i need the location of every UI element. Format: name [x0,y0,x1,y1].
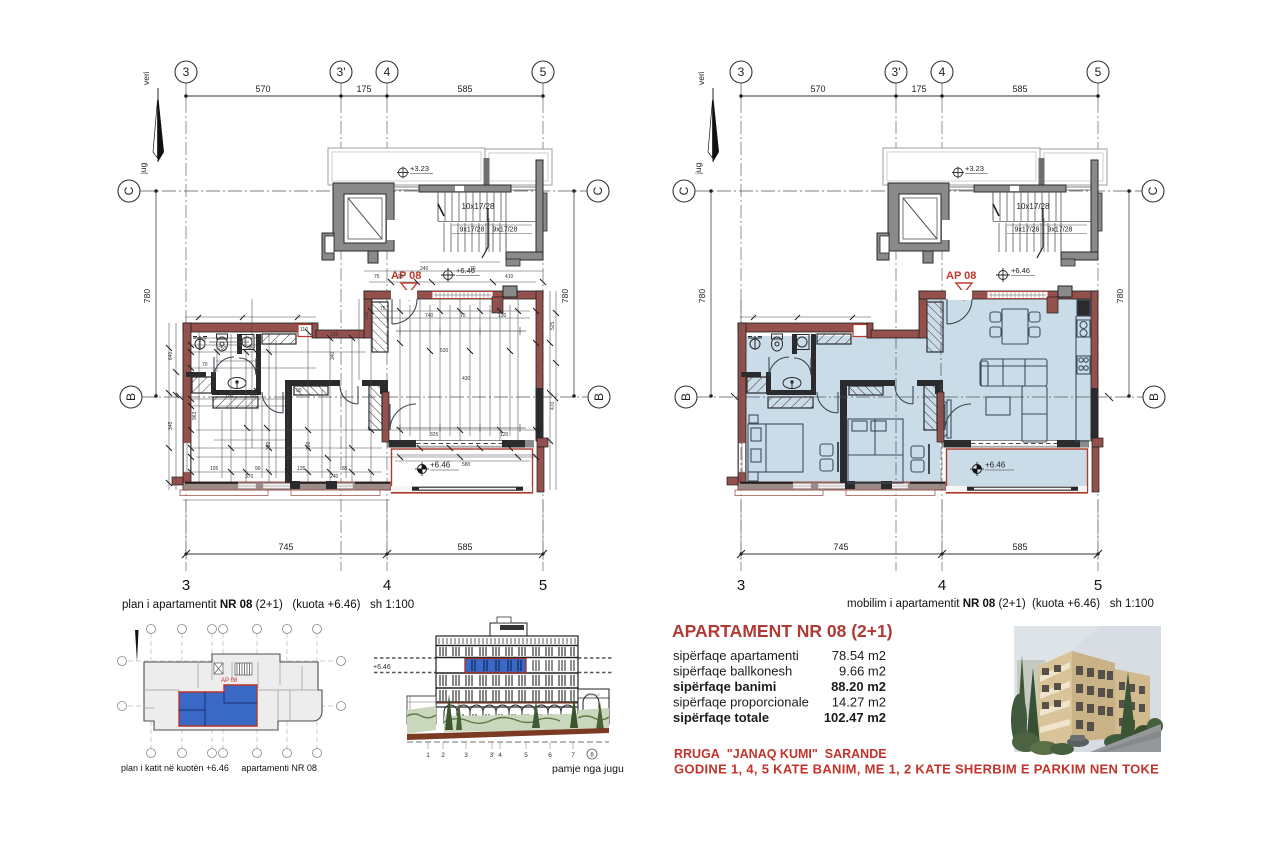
svg-text:78.54 m2: 78.54 m2 [832,648,886,663]
svg-text:70: 70 [202,362,208,368]
svg-text:105: 105 [210,466,219,472]
svg-text:85: 85 [342,466,348,472]
svg-text:GODINA: GODINA [586,693,600,697]
svg-text:345: 345 [168,421,174,430]
svg-text:mobilim i apartamentit NR 08 (: mobilim i apartamentit NR 08 (2+1) (kuot… [847,598,1154,610]
svg-text:2: 2 [441,752,445,759]
svg-text:340: 340 [330,351,336,360]
svg-text:RRUGA "JANAQ KUMI" SARANDE: RRUGA "JANAQ KUMI" SARANDE [674,747,887,761]
svg-text:750: 750 [364,311,370,320]
svg-text:plan i katit në kuotën +6.46: plan i katit në kuotën +6.46 apartamenti… [121,763,317,773]
svg-text:sipërfaqe proporcionale: sipërfaqe proporcionale [673,695,809,710]
svg-text:75: 75 [374,274,380,280]
svg-text:sipërfaqe ballkonesh: sipërfaqe ballkonesh [673,664,792,679]
svg-text:6: 6 [548,752,552,759]
svg-text:9.66 m2: 9.66 m2 [839,664,886,679]
svg-text:AP 08: AP 08 [221,678,238,684]
svg-text:740: 740 [425,313,434,319]
svg-text:380: 380 [266,441,272,450]
svg-text:120: 120 [500,432,509,438]
svg-text:7: 7 [571,752,575,759]
svg-text:90: 90 [296,388,302,394]
svg-text:75: 75 [380,306,386,312]
svg-text:240: 240 [420,266,429,272]
svg-text:5: 5 [524,752,528,759]
svg-text:4: 4 [498,752,502,759]
svg-text:90: 90 [255,466,261,472]
svg-text:580: 580 [462,462,471,468]
svg-text:530: 530 [440,348,449,354]
svg-text:90: 90 [247,346,253,352]
svg-text:370: 370 [245,474,254,480]
svg-text:GODINE 1, 4, 5 KATE BANIM, ME: GODINE 1, 4, 5 KATE BANIM, ME 1, 2 KATE … [674,762,1159,777]
svg-text:135: 135 [330,332,339,338]
svg-text:135: 135 [297,466,306,472]
svg-text:325: 325 [430,432,439,438]
svg-text:95: 95 [398,274,404,280]
svg-text:380: 380 [306,441,312,450]
svg-text:3: 3 [464,752,468,759]
svg-text:410: 410 [505,274,514,280]
svg-text:240: 240 [330,474,339,480]
svg-text:130: 130 [498,313,507,319]
svg-text:sipërfaqe apartamenti: sipërfaqe apartamenti [673,648,799,663]
svg-text:180: 180 [225,393,234,399]
svg-text:250: 250 [218,346,227,352]
svg-text:75: 75 [460,313,466,319]
svg-text:sipërfaqe banimi: sipërfaqe banimi [673,679,776,694]
svg-text:88.20 m2: 88.20 m2 [831,679,886,694]
svg-text:430: 430 [462,376,471,382]
svg-text:640: 640 [168,351,174,360]
svg-text:525: 525 [550,321,556,330]
svg-text:3': 3' [490,752,495,759]
svg-text:963: 963 [192,411,198,420]
svg-text:sipërfaqe totale: sipërfaqe totale [673,710,769,725]
svg-text:plan i apartamentit NR 08 (2+1: plan i apartamentit NR 08 (2+1) (kuota +… [122,599,414,611]
svg-text:110: 110 [300,327,308,333]
svg-text:470: 470 [550,401,556,410]
svg-text:pamje nga jugu: pamje nga jugu [552,763,624,775]
svg-text:14.27 m2: 14.27 m2 [832,695,886,710]
svg-text:102.47 m2: 102.47 m2 [824,710,886,725]
svg-text:1: 1 [426,752,430,759]
svg-text:+6.46: +6.46 [373,664,391,671]
svg-text:70: 70 [470,266,476,272]
svg-text:800: 800 [250,393,259,399]
svg-text:APARTAMENT NR 08 (2+1): APARTAMENT NR 08 (2+1) [672,621,893,641]
